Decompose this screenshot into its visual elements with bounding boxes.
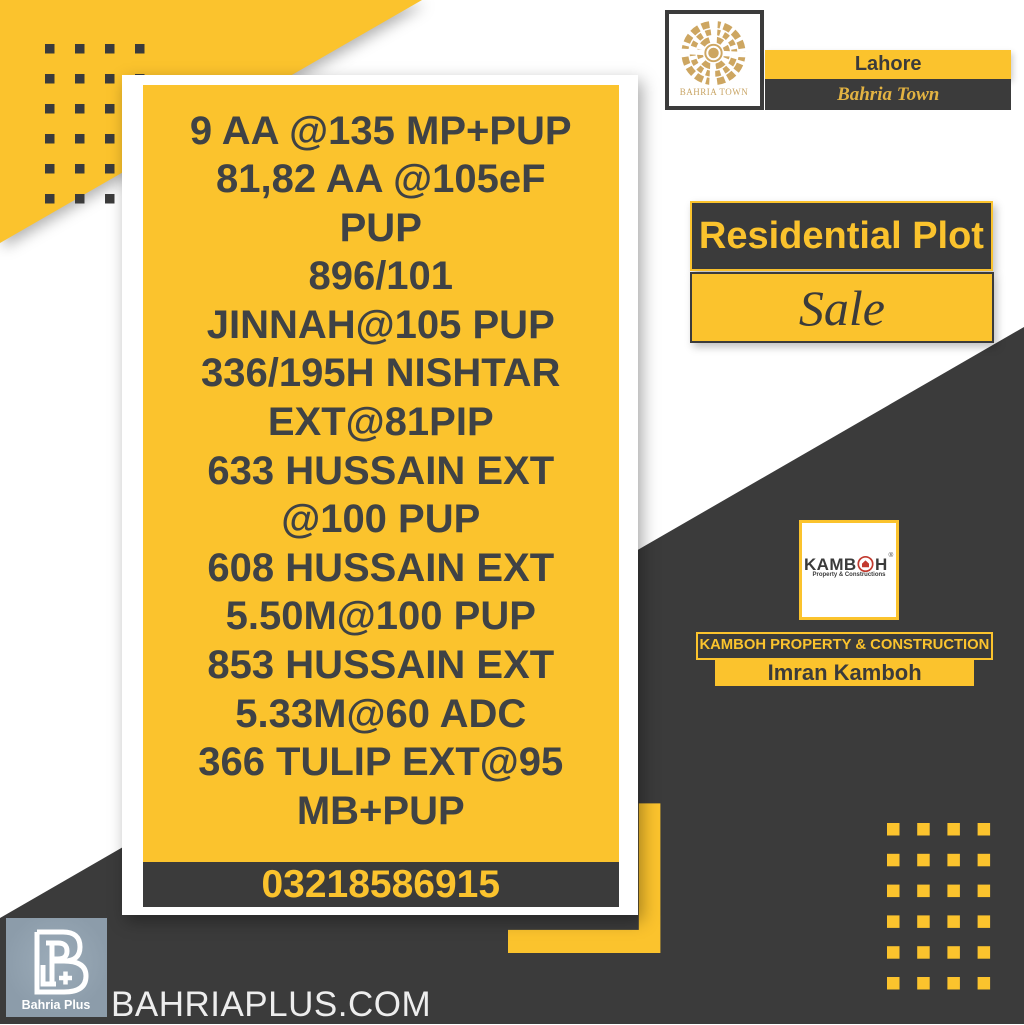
svg-text:®: ® — [889, 551, 894, 559]
svg-text:Bahria Plus: Bahria Plus — [22, 998, 91, 1012]
